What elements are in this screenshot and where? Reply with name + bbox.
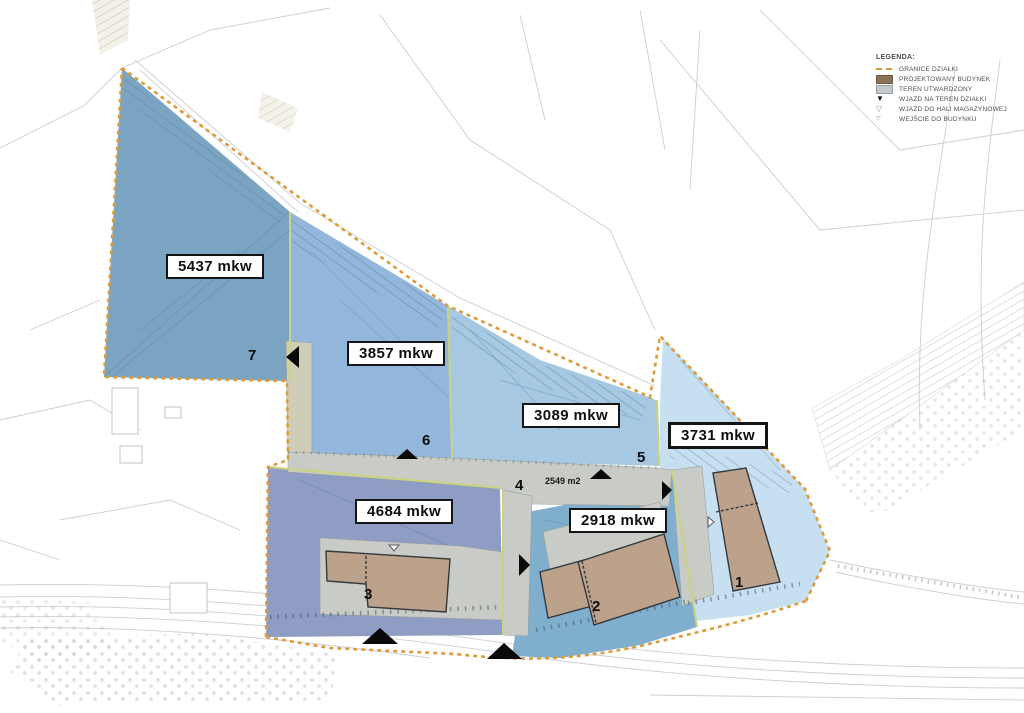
legend-title: LEGENDA: <box>876 54 1024 61</box>
legend-item-granice: GRANICE DZIAŁKI <box>876 64 1024 74</box>
legend-item-wjazd-teren: ▼ WJAZD NA TEREN DZIAŁKI <box>876 94 1024 104</box>
area-label-parcel-3: 4684 mkw <box>355 499 453 524</box>
plot-number-7: 7 <box>248 347 256 364</box>
plot-number-6: 6 <box>422 432 430 449</box>
legend-item-teren: TEREN UTWARDZONY <box>876 84 1024 94</box>
legend-item-wejscie: ▽ WEJŚCIE DO BUDYNKU <box>876 114 1024 124</box>
dashed-line-swatch <box>876 68 894 70</box>
plot-number-2: 2 <box>592 598 600 615</box>
legend: LEGENDA: GRANICE DZIAŁKI PROJEKTOWANY BU… <box>876 54 1024 124</box>
area-label-parcel-1: 3731 mkw <box>668 422 768 449</box>
plot-number-4: 4 <box>515 477 523 494</box>
site-plan-map <box>0 0 1024 713</box>
black-triangle-icon: ▼ <box>876 95 894 103</box>
outline-triangle-icon: ▽ <box>876 105 894 113</box>
plot-number-5: 5 <box>637 449 645 466</box>
legend-item-wjazd-hala: ▽ WJAZD DO HALI MAGAZYNOWEJ <box>876 104 1024 114</box>
area-label-parcel-2: 2918 mkw <box>569 508 667 533</box>
entrance-triangle-icon: ▽ <box>876 116 894 122</box>
area-label-parcel-4: 2549 m2 <box>545 476 581 486</box>
site-plan-canvas: 5437 mkw 3857 mkw 3089 mkw 3731 mkw 4684… <box>0 0 1024 713</box>
plot-number-3: 3 <box>364 586 372 603</box>
legend-item-budynek: PROJEKTOWANY BUDYNEK <box>876 74 1024 84</box>
area-label-parcel-7: 5437 mkw <box>166 254 264 279</box>
plot-number-1: 1 <box>735 574 743 591</box>
paved-swatch <box>876 85 894 94</box>
building-swatch <box>876 75 894 84</box>
area-label-parcel-5: 3089 mkw <box>522 403 620 428</box>
area-label-parcel-6: 3857 mkw <box>347 341 445 366</box>
